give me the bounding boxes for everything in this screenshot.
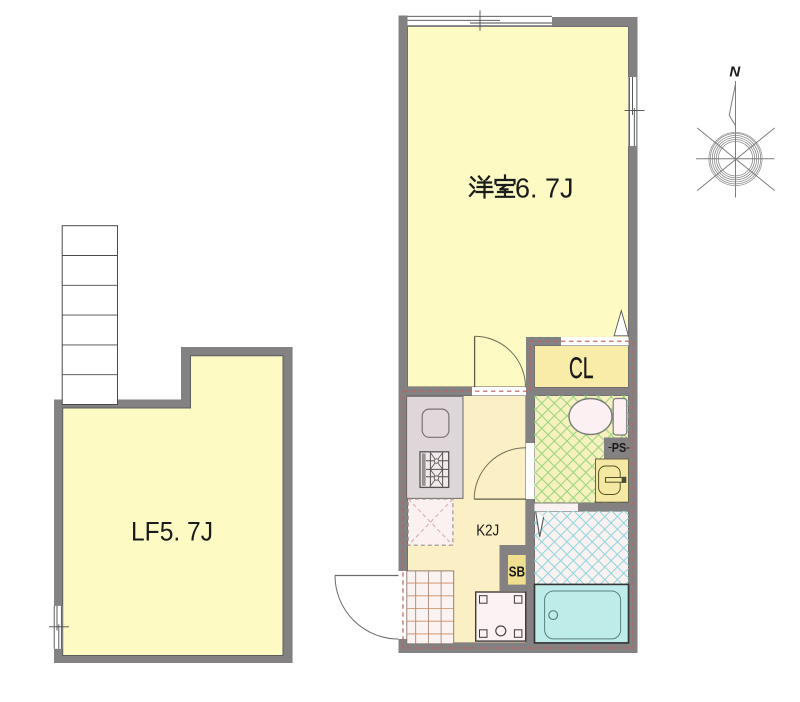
svg-text:PS: PS — [612, 441, 627, 455]
svg-text:LF5. 7J: LF5. 7J — [131, 517, 213, 547]
svg-text:CL: CL — [569, 352, 594, 385]
svg-text:K2J: K2J — [476, 522, 499, 539]
svg-text:SB: SB — [509, 564, 526, 581]
svg-text:6. 7J: 6. 7J — [515, 173, 574, 204]
svg-text:N: N — [729, 64, 741, 81]
